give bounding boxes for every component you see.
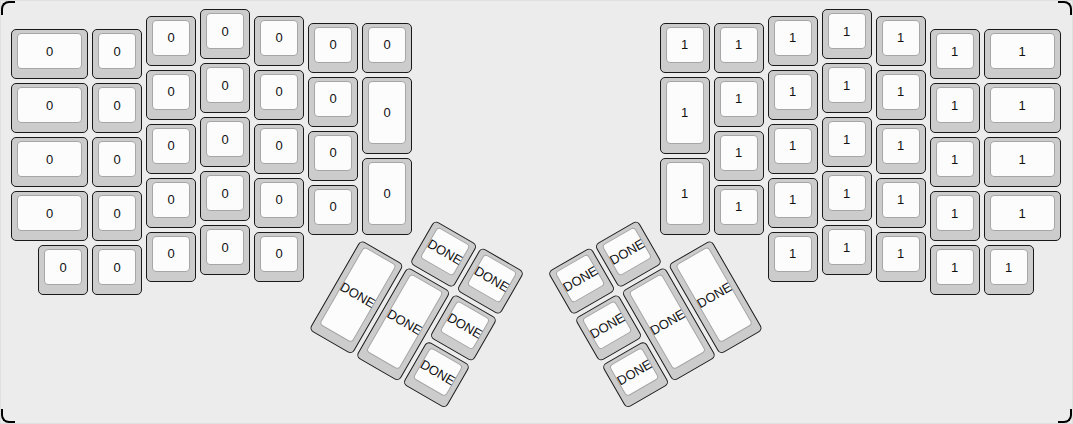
key-left-main-20[interactable]: 0 (254, 16, 304, 66)
key-label: 1 (789, 139, 796, 152)
keycap-top: DONE (420, 226, 471, 276)
key-label: 1 (897, 31, 904, 44)
key-right-main-18[interactable]: 1 (876, 70, 926, 120)
canvas-frame-corner-bottom-left (1, 409, 15, 423)
keycap-top: 0 (206, 121, 244, 157)
keycap-top: 0 (314, 189, 352, 225)
key-right-main-5[interactable]: 1 (714, 131, 764, 181)
key-label: 1 (681, 38, 688, 51)
key-label: DONE (418, 357, 457, 387)
key-label: 1 (897, 247, 904, 260)
keycap-top: 1 (990, 87, 1055, 123)
keycap-top: 1 (882, 182, 920, 218)
key-label: 0 (383, 187, 390, 200)
keycap-top: 0 (368, 81, 406, 144)
keycap-top: 0 (98, 195, 136, 231)
key-right-main-1[interactable]: 1 (660, 77, 710, 154)
key-label: 1 (735, 92, 742, 105)
key-right-main-14[interactable]: 1 (822, 117, 872, 167)
keycap-top: 0 (206, 175, 244, 211)
key-right-main-0[interactable]: 1 (660, 23, 710, 73)
keycap-top: 0 (44, 249, 82, 285)
keycap-top: 0 (368, 162, 406, 225)
keycap-top: 1 (990, 249, 1028, 285)
key-label: 1 (897, 193, 904, 206)
keyboard-layout-canvas: 00000000000000000000000000000000 1111111… (0, 0, 1073, 424)
key-right-main-3[interactable]: 1 (714, 23, 764, 73)
key-label: DONE (694, 279, 733, 309)
key-right-main-4[interactable]: 1 (714, 77, 764, 127)
key-label: 0 (329, 200, 336, 213)
keycap-top: 0 (260, 182, 298, 218)
keycap-top: 1 (666, 81, 704, 144)
key-left-main-29[interactable]: 0 (362, 23, 412, 73)
key-left-main-7[interactable]: 0 (92, 137, 142, 187)
keycap-top: 1 (882, 128, 920, 164)
key-left-main-14[interactable]: 0 (146, 232, 196, 282)
key-label: 1 (681, 187, 688, 200)
keycap-top: 0 (17, 33, 82, 69)
key-label: 0 (329, 38, 336, 51)
keycap-top: DONE (581, 300, 632, 350)
canvas-frame-corner-top-left (1, 1, 15, 15)
key-right-main-19[interactable]: 1 (876, 124, 926, 174)
keycap-top: 1 (774, 20, 812, 56)
key-label: 1 (843, 79, 850, 92)
keycap-top: 1 (828, 67, 866, 103)
key-label: 0 (167, 85, 174, 98)
key-left-main-10[interactable]: 0 (146, 16, 196, 66)
keycap-top: 0 (152, 20, 190, 56)
key-label: 1 (843, 133, 850, 146)
key-left-main-16[interactable]: 0 (200, 63, 250, 113)
key-label: 1 (951, 261, 958, 274)
key-left-main-12[interactable]: 0 (146, 124, 196, 174)
key-label: 1 (1005, 261, 1012, 274)
key-left-main-18[interactable]: 0 (200, 171, 250, 221)
keycap-top: 0 (17, 195, 82, 231)
key-right-main-16[interactable]: 1 (822, 225, 872, 275)
key-label: 0 (46, 99, 53, 112)
keycap-top: DONE (439, 300, 490, 350)
key-label: 0 (275, 31, 282, 44)
keycap-top: 1 (936, 33, 974, 69)
keycap-top: 0 (98, 33, 136, 69)
keycap-top: 1 (666, 162, 704, 225)
keycap-top: 0 (260, 74, 298, 110)
key-right-main-24[interactable]: 1 (930, 137, 980, 187)
key-label: 0 (383, 106, 390, 119)
keycap-top: 1 (882, 20, 920, 56)
key-left-main-4[interactable]: 0 (38, 245, 88, 295)
key-label: 0 (113, 45, 120, 58)
key-label: DONE (426, 236, 465, 266)
key-left-main-13[interactable]: 0 (146, 178, 196, 228)
key-label: 1 (789, 31, 796, 44)
key-label: 1 (843, 25, 850, 38)
key-label: 1 (735, 38, 742, 51)
keycap-top: 1 (828, 175, 866, 211)
key-left-main-5[interactable]: 0 (92, 29, 142, 79)
keycap-top: 0 (152, 182, 190, 218)
key-label: 0 (221, 241, 228, 254)
key-label: 1 (1018, 153, 1025, 166)
keycap-top: 1 (828, 121, 866, 157)
key-label: DONE (338, 279, 377, 309)
key-label: 1 (681, 106, 688, 119)
key-label: DONE (560, 263, 599, 293)
key-left-main-11[interactable]: 0 (146, 70, 196, 120)
key-label: 0 (221, 133, 228, 146)
key-label: 1 (897, 85, 904, 98)
keycap-top: 0 (17, 141, 82, 177)
keycap-top: 1 (720, 27, 758, 63)
key-right-main-11[interactable]: 1 (768, 232, 818, 282)
keycap-top: 1 (990, 141, 1055, 177)
key-left-main-24[interactable]: 0 (254, 232, 304, 282)
key-label: DONE (607, 236, 646, 266)
key-label: 0 (167, 139, 174, 152)
keycap-top: 1 (720, 189, 758, 225)
key-right-main-2[interactable]: 1 (660, 158, 710, 235)
keycap-top: 0 (17, 87, 82, 123)
keycap-top: 1 (990, 195, 1055, 231)
key-left-main-25[interactable]: 0 (308, 23, 358, 73)
key-label: 0 (113, 261, 120, 274)
keycap-top: 0 (260, 20, 298, 56)
key-label: 0 (167, 193, 174, 206)
keycap-top: 0 (98, 87, 136, 123)
key-left-main-1[interactable]: 0 (11, 83, 88, 133)
key-label: 1 (843, 241, 850, 254)
keycap-top: 1 (936, 141, 974, 177)
key-left-main-23[interactable]: 0 (254, 178, 304, 228)
key-left-main-21[interactable]: 0 (254, 70, 304, 120)
key-right-main-7[interactable]: 1 (768, 16, 818, 66)
key-label: 0 (275, 139, 282, 152)
key-label: 0 (59, 261, 66, 274)
keycap-top: 1 (774, 236, 812, 272)
keycap-top: 0 (206, 13, 244, 49)
keycap-top: 0 (206, 229, 244, 265)
key-right-main-29[interactable]: 1 (984, 137, 1061, 187)
key-label: 0 (46, 207, 53, 220)
keycap-top: 0 (368, 27, 406, 63)
key-right-main-31[interactable]: 1 (984, 245, 1034, 295)
key-right-main-10[interactable]: 1 (768, 178, 818, 228)
keycap-top: 1 (774, 74, 812, 110)
key-right-main-22[interactable]: 1 (930, 29, 980, 79)
key-right-main-25[interactable]: 1 (930, 191, 980, 241)
key-label: 1 (843, 187, 850, 200)
keycap-top: 1 (990, 33, 1055, 69)
key-label: 0 (221, 187, 228, 200)
key-label: 1 (951, 207, 958, 220)
keycap-top: 1 (720, 135, 758, 171)
keycap-top: 1 (828, 229, 866, 265)
keycap-top: DONE (608, 346, 659, 396)
key-label: 0 (275, 193, 282, 206)
key-right-main-21[interactable]: 1 (876, 232, 926, 282)
key-right-main-13[interactable]: 1 (822, 63, 872, 113)
key-right-main-9[interactable]: 1 (768, 124, 818, 174)
keycap-top: 1 (936, 195, 974, 231)
keycap-top: DONE (601, 226, 652, 276)
keycap-top: 0 (314, 27, 352, 63)
key-label: 0 (329, 92, 336, 105)
key-label: 1 (789, 193, 796, 206)
key-label: 0 (221, 79, 228, 92)
key-right-main-20[interactable]: 1 (876, 178, 926, 228)
keycap-top: 1 (882, 74, 920, 110)
key-label: 0 (167, 247, 174, 260)
keycap-top: 0 (152, 74, 190, 110)
canvas-frame-corner-top-right (1058, 1, 1072, 15)
key-left-main-26[interactable]: 0 (308, 77, 358, 127)
key-label: 1 (897, 139, 904, 152)
key-label: 0 (221, 25, 228, 38)
key-left-main-2[interactable]: 0 (11, 137, 88, 187)
key-label: 0 (113, 99, 120, 112)
key-label: 1 (789, 247, 796, 260)
keycap-top: 0 (260, 128, 298, 164)
keycap-top: 0 (152, 236, 190, 272)
keycap-top: 0 (98, 249, 136, 285)
key-label: 1 (1018, 45, 1025, 58)
keycap-top: 1 (720, 81, 758, 117)
key-label: DONE (445, 310, 484, 340)
key-label: 0 (383, 38, 390, 51)
keycap-top: DONE (412, 346, 463, 396)
keycap-top: 1 (828, 13, 866, 49)
key-label: DONE (472, 263, 511, 293)
key-label: 0 (113, 207, 120, 220)
key-label: 1 (735, 200, 742, 213)
key-left-main-9[interactable]: 0 (92, 245, 142, 295)
keycap-top: 0 (206, 67, 244, 103)
key-right-main-28[interactable]: 1 (984, 83, 1061, 133)
keycap-top: 1 (774, 128, 812, 164)
key-label: 0 (275, 247, 282, 260)
key-label: DONE (385, 306, 424, 336)
key-left-main-31[interactable]: 0 (362, 158, 412, 235)
key-left-main-19[interactable]: 0 (200, 225, 250, 275)
keycap-top: 1 (936, 249, 974, 285)
key-left-main-27[interactable]: 0 (308, 131, 358, 181)
keycap-top: 0 (98, 141, 136, 177)
key-label: 1 (789, 85, 796, 98)
keycap-top: 0 (260, 236, 298, 272)
key-left-main-6[interactable]: 0 (92, 83, 142, 133)
keycap-top: 1 (774, 182, 812, 218)
key-left-main-8[interactable]: 0 (92, 191, 142, 241)
keycap-top: 1 (666, 27, 704, 63)
key-label: 1 (1018, 99, 1025, 112)
key-left-main-17[interactable]: 0 (200, 117, 250, 167)
key-label: 0 (46, 45, 53, 58)
key-right-main-30[interactable]: 1 (984, 191, 1061, 241)
keycap-top: 1 (882, 236, 920, 272)
keycap-top: 0 (314, 81, 352, 117)
key-right-main-23[interactable]: 1 (930, 83, 980, 133)
canvas-frame-corner-bottom-right (1058, 409, 1072, 423)
key-left-main-30[interactable]: 0 (362, 77, 412, 154)
key-left-main-28[interactable]: 0 (308, 185, 358, 235)
key-label: DONE (647, 306, 686, 336)
key-right-main-27[interactable]: 1 (984, 29, 1061, 79)
keycap-top: 0 (152, 128, 190, 164)
key-label: 0 (46, 153, 53, 166)
key-right-main-12[interactable]: 1 (822, 9, 872, 59)
key-label: 1 (951, 45, 958, 58)
key-left-main-15[interactable]: 0 (200, 9, 250, 59)
key-label: 0 (329, 146, 336, 159)
key-left-main-3[interactable]: 0 (11, 191, 88, 241)
key-label: DONE (587, 310, 626, 340)
key-label: 1 (951, 99, 958, 112)
key-left-main-0[interactable]: 0 (11, 29, 88, 79)
key-label: DONE (614, 357, 653, 387)
key-label: 0 (113, 153, 120, 166)
keycap-top: 1 (936, 87, 974, 123)
key-label: 1 (1018, 207, 1025, 220)
key-label: 0 (275, 85, 282, 98)
key-right-main-8[interactable]: 1 (768, 70, 818, 120)
key-label: 1 (951, 153, 958, 166)
keycap-top: DONE (466, 253, 517, 303)
keycap-top: DONE (554, 253, 605, 303)
key-label: 0 (167, 31, 174, 44)
key-label: 1 (735, 146, 742, 159)
key-right-main-6[interactable]: 1 (714, 185, 764, 235)
keycap-top: 0 (314, 135, 352, 171)
key-right-main-26[interactable]: 1 (930, 245, 980, 295)
key-left-main-22[interactable]: 0 (254, 124, 304, 174)
key-right-main-17[interactable]: 1 (876, 16, 926, 66)
key-right-main-15[interactable]: 1 (822, 171, 872, 221)
